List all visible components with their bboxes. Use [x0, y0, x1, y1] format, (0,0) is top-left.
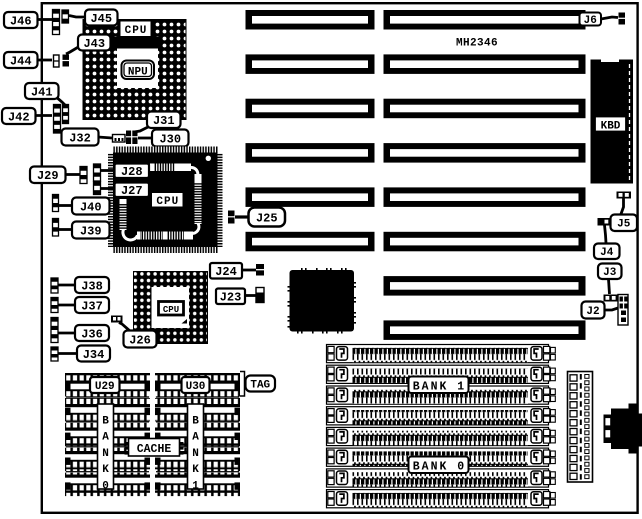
svg-text:J36: J36: [81, 327, 103, 341]
svg-text:J3: J3: [603, 267, 617, 279]
svg-text:A: A: [192, 432, 199, 444]
svg-text:1: 1: [192, 480, 199, 492]
svg-text:J43: J43: [83, 37, 105, 51]
svg-text:J23: J23: [220, 291, 242, 305]
svg-text:J27: J27: [121, 184, 143, 198]
svg-text:J44: J44: [10, 54, 32, 68]
svg-text:MH2346: MH2346: [456, 38, 498, 50]
svg-text:J2: J2: [586, 306, 599, 318]
svg-text:A: A: [102, 432, 109, 444]
svg-text:TAG: TAG: [250, 379, 270, 391]
svg-text:N: N: [102, 448, 109, 460]
svg-text:J46: J46: [10, 14, 32, 28]
svg-text:J6: J6: [584, 15, 597, 27]
svg-text:J34: J34: [83, 348, 105, 362]
svg-text:K: K: [192, 464, 199, 476]
svg-text:J39: J39: [80, 224, 102, 238]
svg-text:J28: J28: [121, 165, 143, 179]
svg-text:J40: J40: [80, 200, 102, 214]
svg-text:CPU: CPU: [125, 25, 148, 37]
svg-text:J4: J4: [600, 247, 614, 259]
svg-text:U29: U29: [95, 381, 115, 393]
svg-text:J29: J29: [37, 169, 59, 183]
svg-text:J45: J45: [90, 12, 112, 26]
svg-text:CACHE: CACHE: [137, 443, 172, 456]
svg-text:J24: J24: [215, 265, 237, 279]
svg-text:B: B: [192, 416, 199, 428]
svg-text:J42: J42: [8, 110, 30, 124]
svg-text:B: B: [102, 416, 109, 428]
svg-text:J30: J30: [159, 132, 181, 146]
svg-text:J31: J31: [153, 114, 175, 128]
svg-text:BANK 0: BANK 0: [413, 460, 466, 473]
svg-text:J26: J26: [129, 333, 151, 347]
svg-text:CPU: CPU: [163, 305, 179, 315]
svg-text:J37: J37: [81, 299, 103, 313]
svg-text:J25: J25: [256, 211, 278, 225]
svg-text:K: K: [102, 464, 109, 476]
svg-text:J5: J5: [617, 219, 631, 231]
svg-text:0: 0: [102, 480, 109, 492]
svg-text:N: N: [192, 448, 199, 460]
svg-text:J32: J32: [69, 131, 91, 145]
svg-text:CPU: CPU: [156, 196, 179, 208]
svg-text:NPU: NPU: [128, 67, 148, 79]
svg-text:J41: J41: [31, 85, 53, 99]
svg-text:KBD: KBD: [601, 121, 621, 133]
svg-text:J38: J38: [81, 279, 103, 293]
svg-text:U30: U30: [186, 381, 206, 393]
svg-text:BANK 1: BANK 1: [413, 380, 466, 393]
